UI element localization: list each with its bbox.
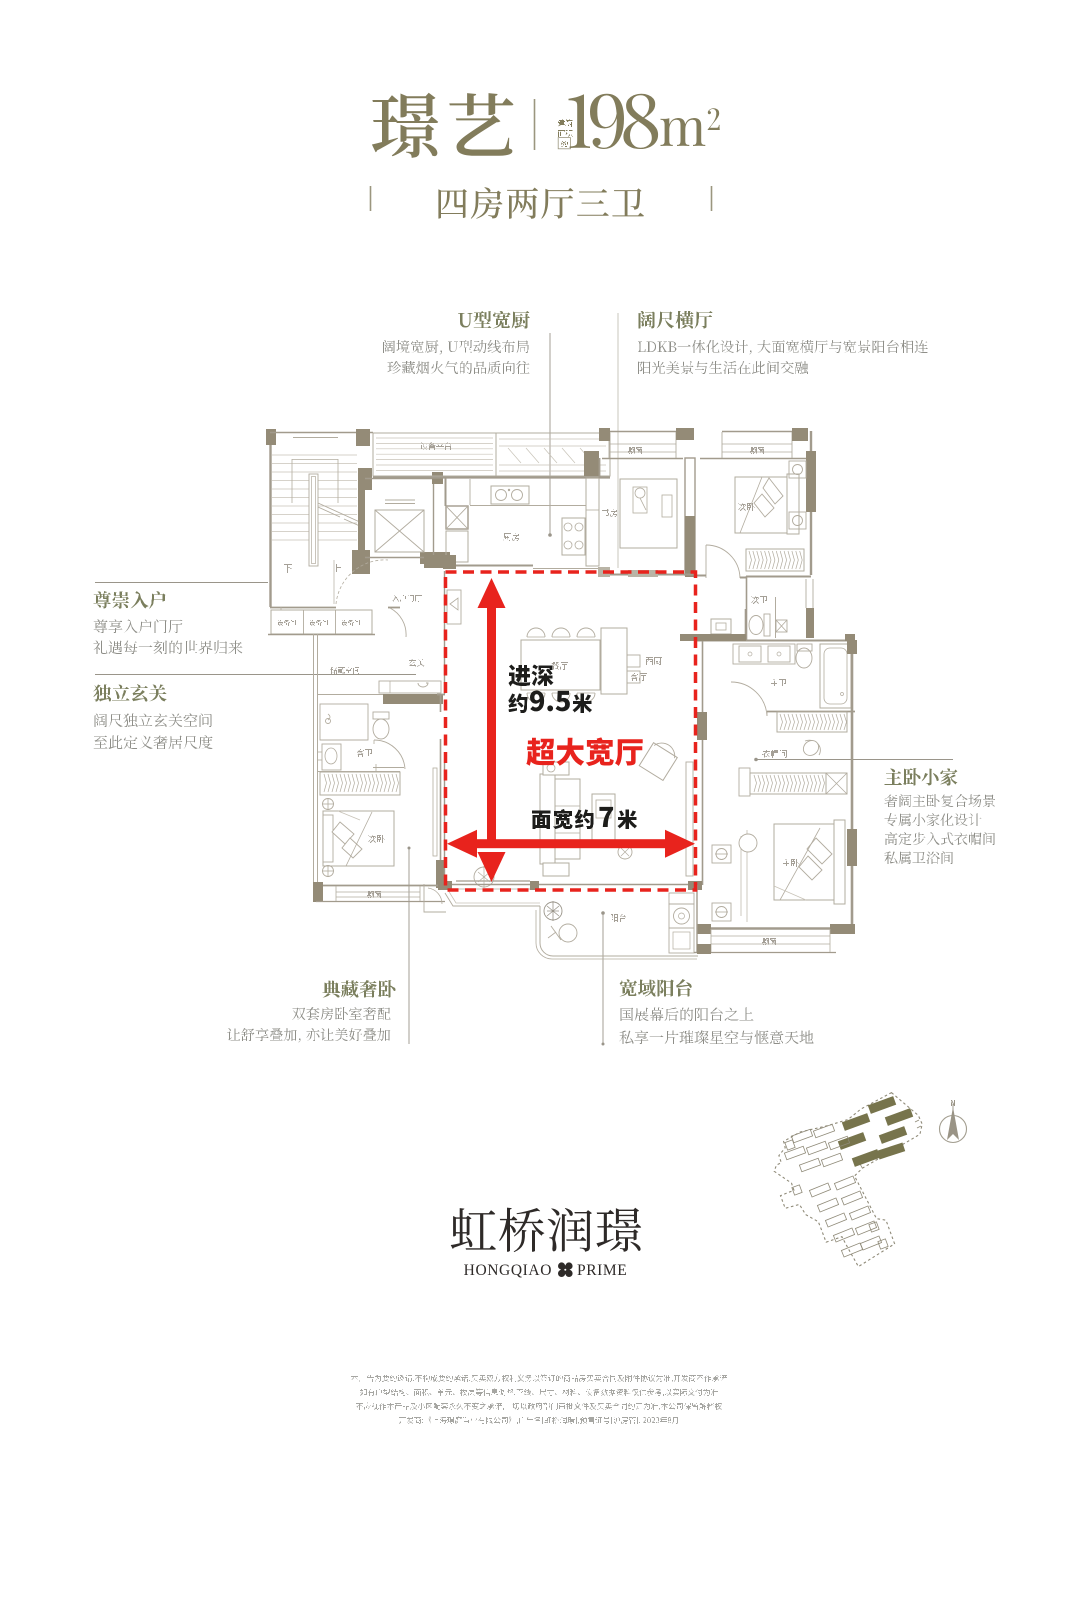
svg-text:PRIME: PRIME	[577, 1262, 627, 1279]
svg-text:HONGQIAO: HONGQIAO	[464, 1262, 552, 1279]
